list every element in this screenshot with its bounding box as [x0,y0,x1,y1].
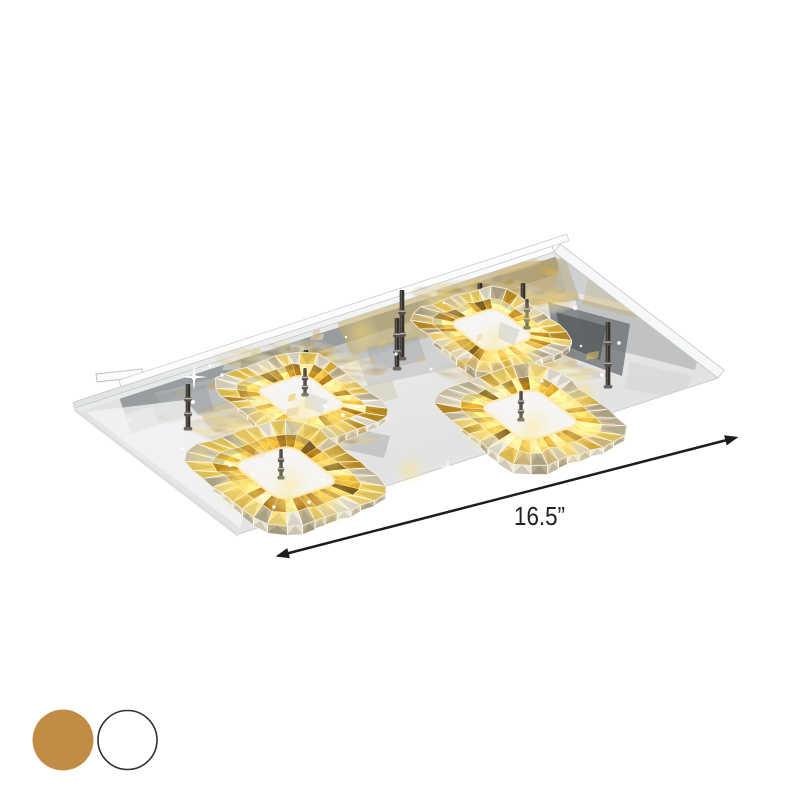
svg-text:16.5”: 16.5” [514,501,565,531]
